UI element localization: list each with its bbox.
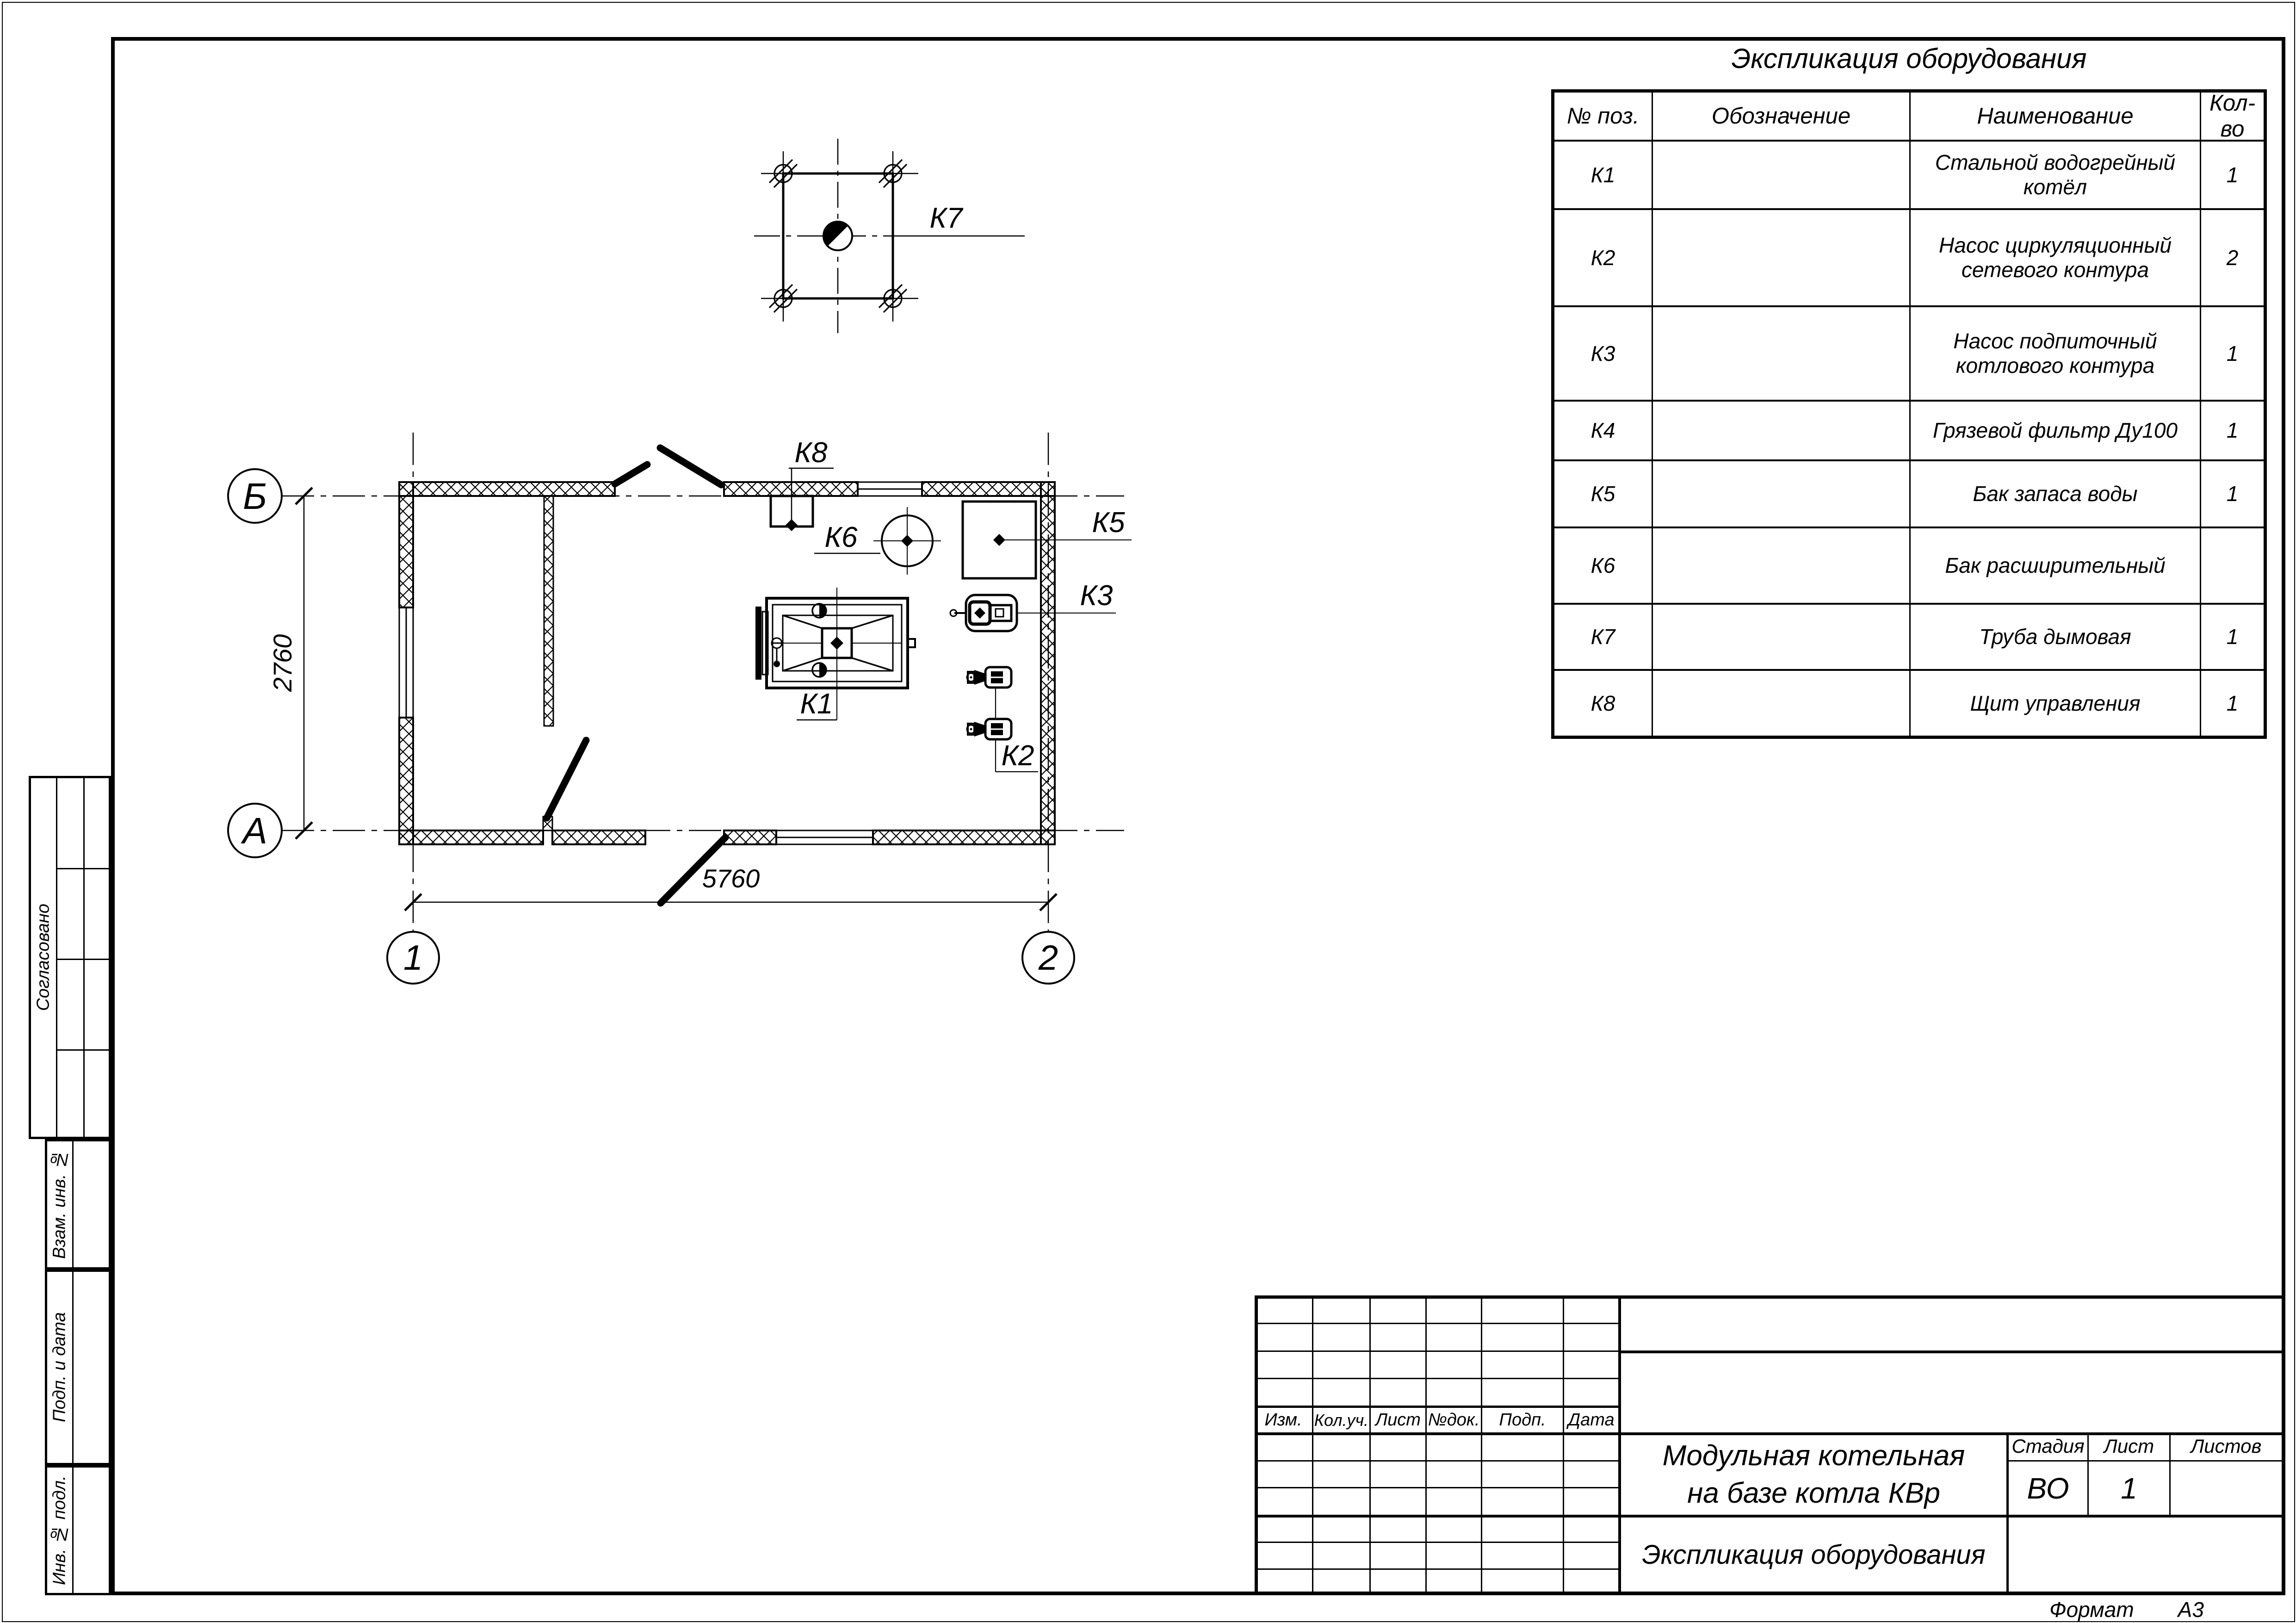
table-cell-pos: К3 bbox=[1554, 307, 1653, 402]
table-cell-designation bbox=[1653, 528, 1911, 605]
table-cell-name: Бак расширительный bbox=[1911, 528, 2201, 605]
table-cell-qty: 1 bbox=[2201, 142, 2264, 210]
rev-col-izm: Изм. bbox=[1255, 1408, 1312, 1432]
table-cell-designation bbox=[1653, 461, 1911, 528]
tag-k2: К2 bbox=[1001, 740, 1034, 772]
table-cell-designation bbox=[1653, 142, 1911, 210]
sheets-value bbox=[2171, 1462, 2282, 1515]
side-stamp-replace-inv-label: Взам. инв. № bbox=[47, 1141, 72, 1267]
table-cell-name: Стальной водогрейный котёл bbox=[1911, 142, 2201, 210]
tag-k1: К1 bbox=[800, 688, 833, 720]
table-cell-qty: 2 bbox=[2201, 210, 2264, 307]
col-header-qty: Кол-во bbox=[2201, 93, 2264, 142]
drawing-sheet: Экспликация оборудования № поз. Обозначе… bbox=[0, 0, 2296, 1623]
tag-k3: К3 bbox=[1080, 580, 1113, 612]
side-stamp-inv-orig-label: Инв. № подл. bbox=[47, 1468, 72, 1593]
format-value: А3 bbox=[2178, 1597, 2204, 1622]
rev-col-ndok: №док. bbox=[1427, 1408, 1481, 1432]
table-cell-qty: 1 bbox=[2201, 605, 2264, 671]
sheet-title: Экспликация оборудования bbox=[1621, 1518, 2006, 1592]
title-block: Изм. Кол.уч. Лист №док. Подп. Дата Модул… bbox=[1255, 1295, 2282, 1592]
table-cell-pos: К7 bbox=[1554, 605, 1653, 671]
table-cell-designation bbox=[1653, 671, 1911, 736]
stage-label: Стадия bbox=[2009, 1432, 2087, 1460]
table-cell-name: Бак запаса воды bbox=[1911, 461, 2201, 528]
axis-label-b: Б bbox=[243, 476, 267, 517]
tag-k8: К8 bbox=[794, 437, 828, 469]
table-cell-qty bbox=[2201, 528, 2264, 605]
sheet-label: Лист bbox=[2089, 1432, 2169, 1460]
table-cell-pos: К6 bbox=[1554, 528, 1653, 605]
expansion-tank-k6-symbol: К6 bbox=[814, 507, 941, 575]
table-cell-name: Насос подпиточный котлового контура bbox=[1911, 307, 2201, 402]
side-stamp-sign-date: Подп. и дата bbox=[45, 1270, 111, 1465]
table-cell-pos: К1 bbox=[1554, 142, 1653, 210]
stage-value: ВО bbox=[2009, 1462, 2087, 1515]
table-cell-pos: К2 bbox=[1554, 210, 1653, 307]
table-cell-qty: 1 bbox=[2201, 307, 2264, 402]
table-cell-qty: 1 bbox=[2201, 671, 2264, 736]
walls bbox=[399, 482, 1055, 844]
table-cell-designation bbox=[1653, 307, 1911, 402]
side-stamp-approved-label: Согласовано bbox=[31, 778, 56, 1137]
format-note: Формат А3 bbox=[2049, 1597, 2204, 1622]
table-cell-name: Труба дымовая bbox=[1911, 605, 2201, 671]
dimension-5760: 5760 bbox=[405, 864, 1057, 911]
dim-width-label: 5760 bbox=[702, 864, 760, 893]
col-header-designation: Обозначение bbox=[1653, 93, 1911, 142]
table-cell-pos: К4 bbox=[1554, 402, 1653, 461]
table-cell-qty: 1 bbox=[2201, 402, 2264, 461]
axis-markers: Б А 1 2 bbox=[228, 469, 1074, 984]
rev-col-podp: Подп. bbox=[1482, 1408, 1563, 1432]
rev-col-data: Дата bbox=[1564, 1408, 1618, 1432]
table-cell-pos: К8 bbox=[1554, 671, 1653, 736]
sheets-label: Листов bbox=[2171, 1432, 2282, 1460]
axis-label-2: 2 bbox=[1038, 938, 1058, 978]
side-stamp-replace-inv: Взам. инв. № bbox=[45, 1139, 111, 1270]
doc-title: Модульная котельная на базе котла КВр bbox=[1621, 1435, 2006, 1515]
axis-label-a: А bbox=[241, 810, 267, 851]
axis-label-1: 1 bbox=[403, 938, 423, 978]
equipment-table-title: Экспликация оборудования bbox=[1551, 43, 2267, 74]
doc-title-line1: Модульная котельная bbox=[1663, 1437, 1965, 1475]
floor-plan: К7 bbox=[139, 116, 1184, 1009]
col-header-pos: № поз. bbox=[1554, 93, 1653, 142]
feed-pump-k3-symbol: К3 bbox=[950, 580, 1116, 631]
dim-height-label: 2760 bbox=[268, 634, 297, 693]
side-stamp-inv-orig: Инв. № подл. bbox=[45, 1465, 111, 1595]
side-stamp-sign-date-label: Подп. и дата bbox=[47, 1272, 72, 1463]
table-cell-designation bbox=[1653, 210, 1911, 307]
circulation-pumps-k2-symbol: К2 bbox=[967, 667, 1038, 772]
table-cell-name: Насос циркуляционный сетевого контура bbox=[1911, 210, 2201, 307]
tag-k6: К6 bbox=[824, 521, 858, 553]
doc-title-line2: на базе котла КВр bbox=[1687, 1475, 1940, 1512]
rev-col-koluch: Кол.уч. bbox=[1313, 1408, 1369, 1432]
col-header-name: Наименование bbox=[1911, 93, 2201, 142]
format-label: Формат bbox=[2049, 1597, 2134, 1622]
side-stamp-approved: Согласовано bbox=[29, 776, 111, 1139]
table-cell-name: Щит управления bbox=[1911, 671, 2201, 736]
tag-k5: К5 bbox=[1092, 507, 1125, 539]
table-cell-name: Грязевой фильтр Ду100 bbox=[1911, 402, 2201, 461]
chimney-k7-symbol: К7 bbox=[754, 139, 1025, 333]
sheet-value: 1 bbox=[2089, 1462, 2169, 1515]
dimension-2760: 2760 bbox=[268, 488, 312, 839]
table-cell-qty: 1 bbox=[2201, 461, 2264, 528]
table-cell-designation bbox=[1653, 605, 1911, 671]
boiler-k1-symbol: К1 bbox=[755, 588, 915, 720]
rev-col-list: Лист bbox=[1371, 1408, 1425, 1432]
tag-k7: К7 bbox=[929, 202, 964, 234]
table-cell-pos: К5 bbox=[1554, 461, 1653, 528]
table-cell-designation bbox=[1653, 402, 1911, 461]
equipment-table: № поз. Обозначение Наименование Кол-во К… bbox=[1551, 89, 2267, 739]
